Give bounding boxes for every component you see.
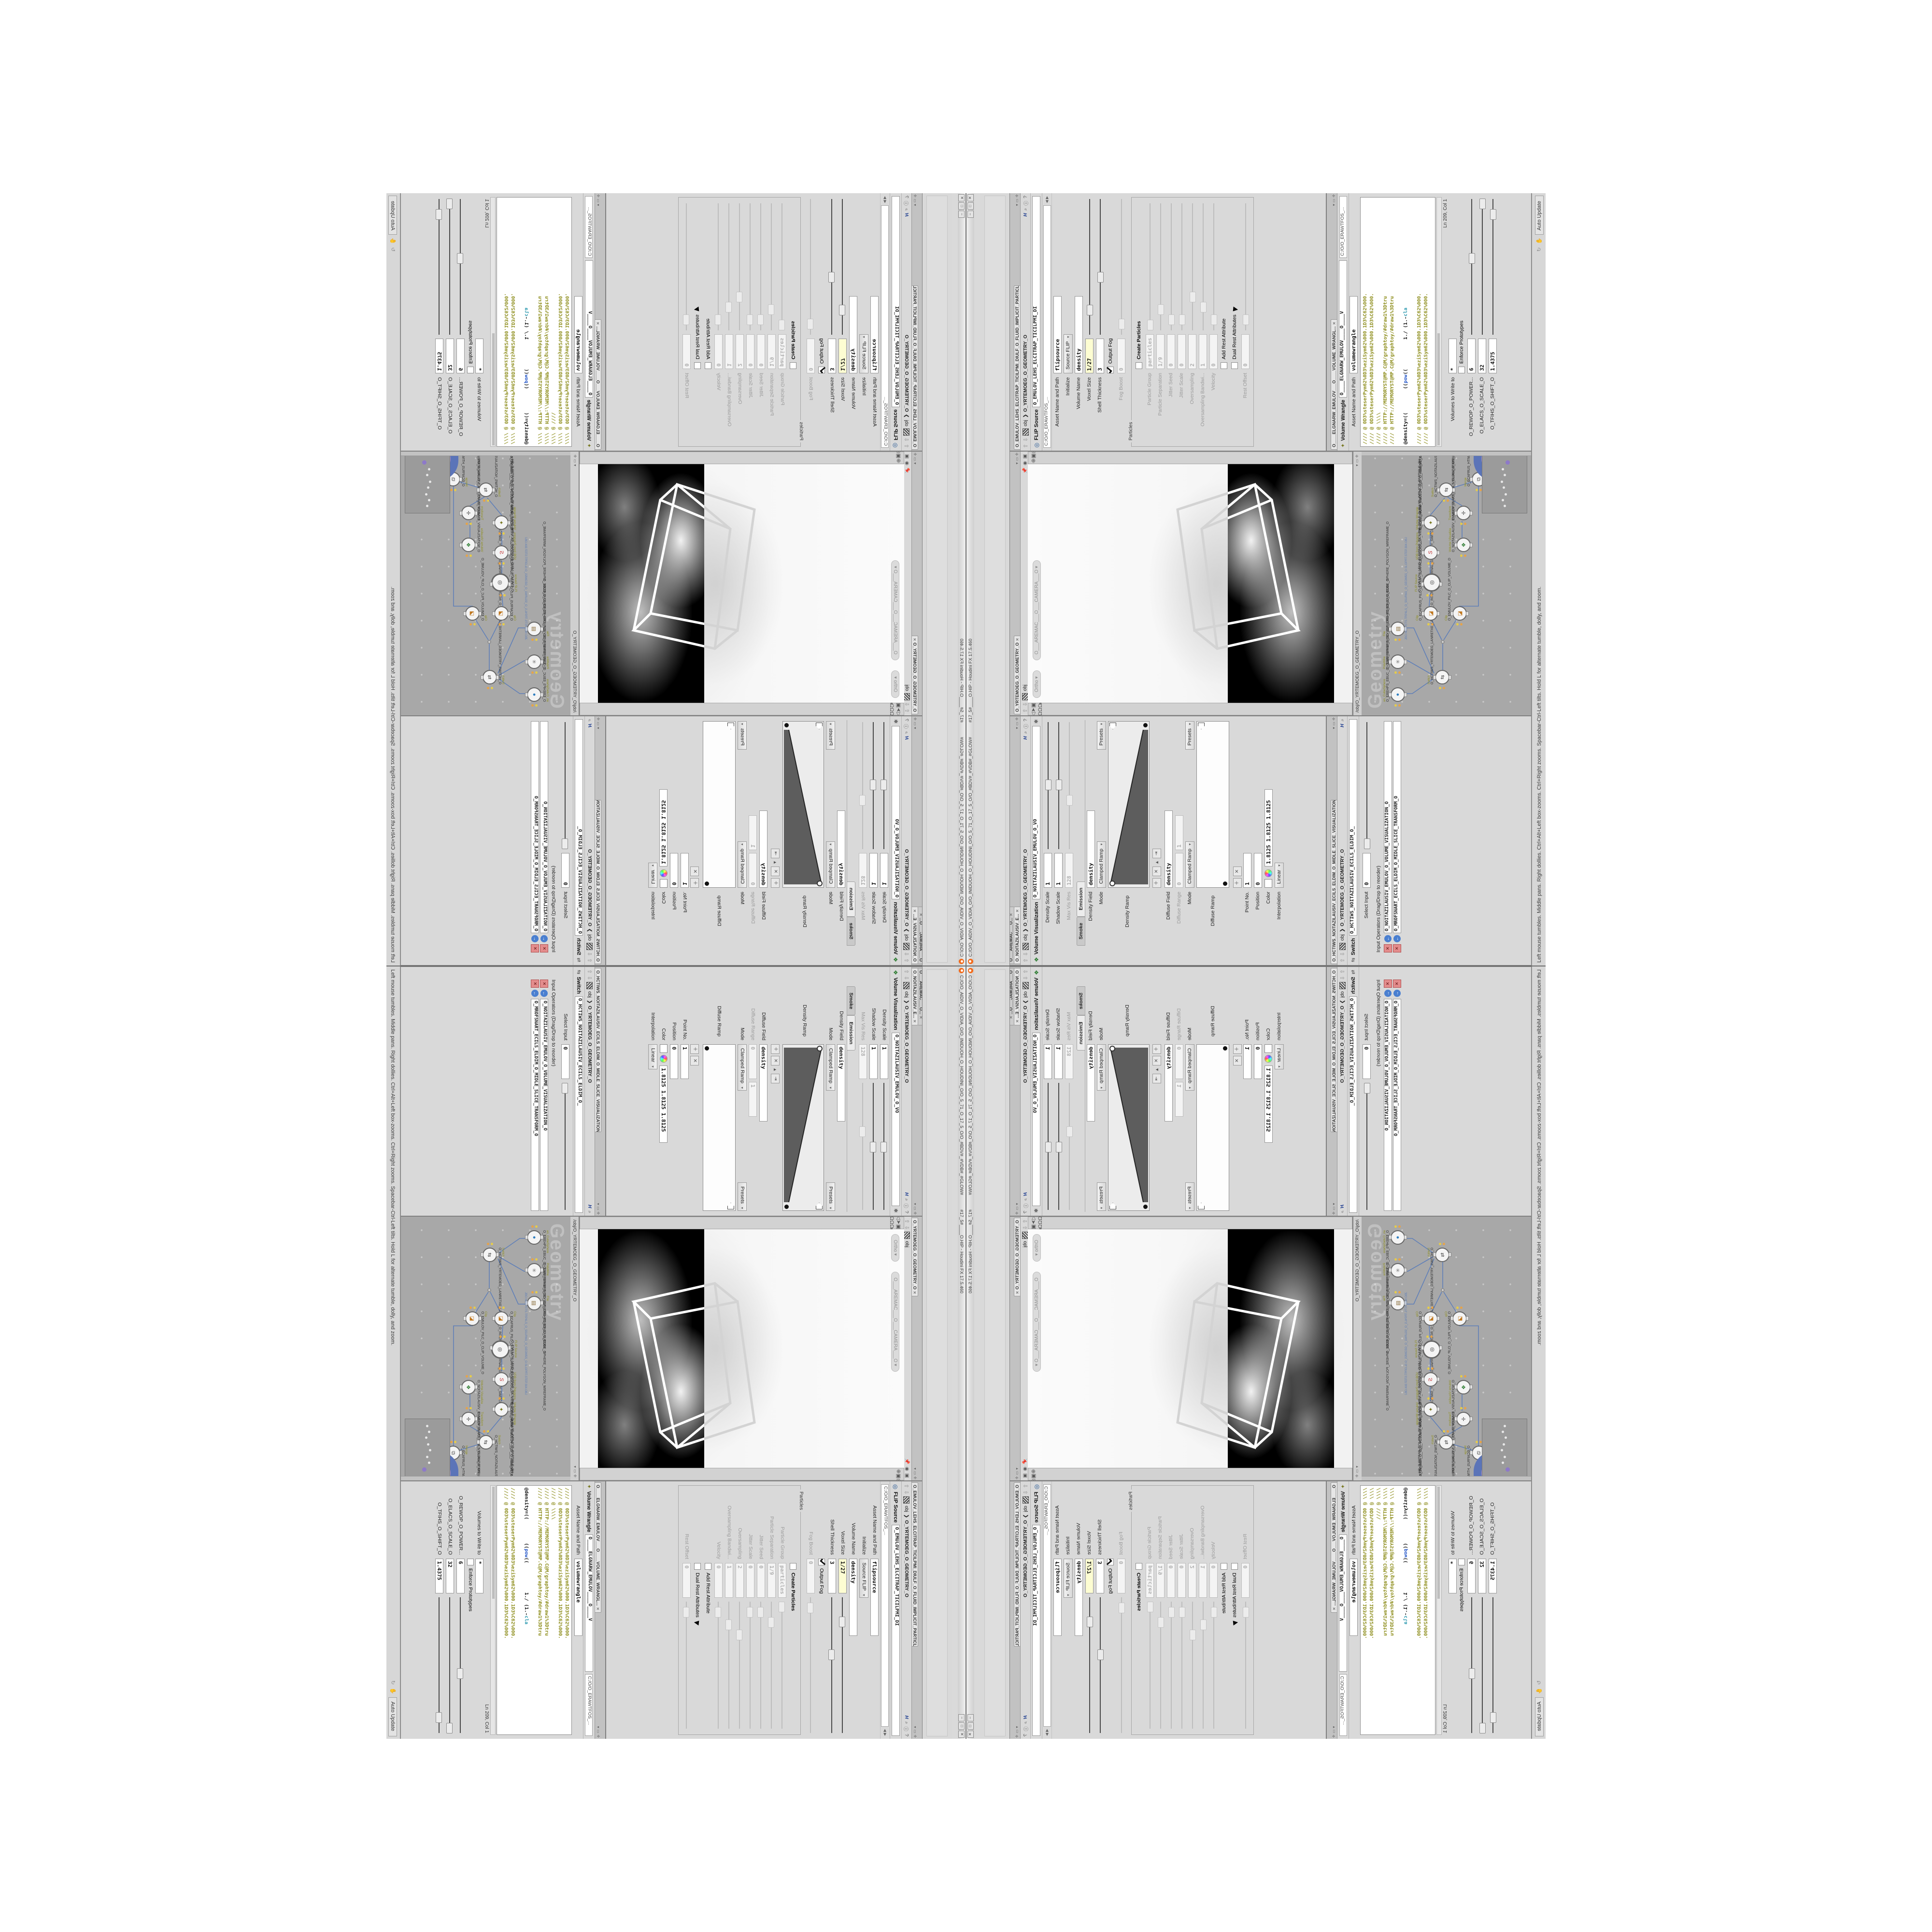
node-flag-badge[interactable] xyxy=(1439,1243,1441,1245)
minimize-button[interactable]: – xyxy=(959,1714,965,1721)
breadcrumb-root[interactable]: obj xyxy=(905,684,910,691)
node-flag-badge[interactable] xyxy=(473,1307,476,1309)
network-node[interactable]: PolyWire O_ENARFERIW_NOGYLOP_EREHPS_EBUC… xyxy=(1391,1263,1405,1279)
presets-dropdown[interactable]: Presets xyxy=(1185,1182,1194,1211)
pane-tab[interactable]: O_EMULOV_LEHS_ELCITRAP_TICILPMI_DIULF_O_… xyxy=(912,1482,918,1647)
pane-tab[interactable]: O___AREMAC___O...✕ xyxy=(918,968,922,1025)
param-slider[interactable] xyxy=(1167,1602,1175,1730)
interpolation-dropdown[interactable]: Linear xyxy=(1275,1044,1284,1069)
param-field[interactable]: 2 xyxy=(1188,1563,1196,1598)
param-slider[interactable] xyxy=(1210,202,1217,330)
ramp-delete-button[interactable]: ✕ xyxy=(771,1056,780,1065)
gear-icon[interactable]: ✱ xyxy=(893,1208,899,1213)
snapshot-icon[interactable]: ▣ xyxy=(905,454,910,458)
mode-dropdown[interactable]: Clamped Ramp xyxy=(1097,841,1106,888)
network-node[interactable]: FLIP Source O_EMULOV_LEHS_ELCITRAP_TICIL… xyxy=(491,575,510,592)
reorder-icon[interactable]: ← xyxy=(1393,990,1401,997)
close-button[interactable]: ✕ xyxy=(959,194,965,201)
param-slider[interactable] xyxy=(747,202,754,330)
density-ramp[interactable] xyxy=(1108,721,1150,888)
shell-thickness-field[interactable]: 3 xyxy=(1096,339,1104,373)
update-mode-dropdown[interactable]: Auto Update xyxy=(1535,196,1544,235)
tool-icon[interactable]: ▣ xyxy=(895,1224,901,1229)
param-field[interactable]: 1/9 xyxy=(768,334,776,369)
voxel-size-field[interactable]: 1/27 xyxy=(839,339,847,373)
asset-name-field[interactable]: volumewrangle xyxy=(1350,296,1358,373)
tool-icon[interactable]: Ω xyxy=(889,1224,895,1228)
param-field[interactable]: 0 xyxy=(715,334,723,369)
network-path[interactable]: /obj/O_YRTEMOEG_O_GEOMETRY_O xyxy=(1355,1220,1360,1302)
display-option-icon[interactable]: ◎ xyxy=(1031,451,1037,454)
pane-controls[interactable]: ▾▭✛ xyxy=(595,194,600,206)
network-node[interactable]: FLIP Source O_EMULOV_LEHS_ELCITRAP_TICIL… xyxy=(491,1340,510,1357)
delete-input-button[interactable]: ✕ xyxy=(1393,980,1401,988)
pane-controls[interactable]: ▾▭✛ xyxy=(1332,1203,1337,1215)
param-slider[interactable] xyxy=(1044,1083,1051,1211)
breadcrumb-path[interactable]: O_YRTEMOEG_O_GEOMETRY_O xyxy=(587,849,593,926)
param-field[interactable]: 0 xyxy=(1254,853,1262,888)
search-icon[interactable]: ⌕ xyxy=(1023,731,1028,734)
param-slider[interactable] xyxy=(715,1602,723,1730)
ramp-add-button[interactable]: ＋ xyxy=(690,1044,699,1054)
network-node[interactable]: FLIP Source O_EMULOV_LEHS_ELCITRAP_TICIL… xyxy=(1422,1340,1441,1357)
param-slider[interactable] xyxy=(870,1083,878,1211)
pin-icon[interactable]: 📌 xyxy=(1023,468,1028,473)
color-wheel-icon[interactable] xyxy=(660,869,668,877)
network-canvas[interactable]: Geometry xyxy=(1362,452,1531,715)
node-flag-badge[interactable] xyxy=(1394,704,1397,707)
enforce-prototypes-checkbox[interactable] xyxy=(467,367,474,373)
color-wheel-icon[interactable] xyxy=(1264,1055,1272,1063)
tool-icon[interactable]: Ω xyxy=(889,1216,895,1220)
refresh-icon[interactable]: ↻ xyxy=(1536,1680,1542,1685)
diffuse-ramp[interactable] xyxy=(1196,1044,1229,1211)
network-canvas[interactable]: Geometry xyxy=(1362,1217,1531,1480)
node-name-field[interactable]: O_NOITAZILAUSIV_EMULOV_O_VO xyxy=(892,726,900,899)
nav-back-icon[interactable]: ⇧ xyxy=(587,958,593,963)
param-slider[interactable] xyxy=(1055,721,1062,849)
breadcrumb-path[interactable]: O_YRTEMOEG_O_GEOMETRY_O xyxy=(1023,335,1028,412)
node-flag-badge[interactable] xyxy=(535,1291,538,1293)
network-node[interactable]: Transform O_MROFSNART_ECILS_ELDIM_O_MIDL… xyxy=(1456,504,1471,520)
pane-tab[interactable]: O____ELGNARW_EMULOV___O____VOLUME_WRANGL… xyxy=(595,319,601,450)
network-node[interactable]: Transform O_MROFSNART_ECILS_ELDIM_O_MIDL… xyxy=(461,1412,476,1428)
ramp-point[interactable] xyxy=(1109,1046,1115,1051)
asset-name-field[interactable]: volumewrangle xyxy=(574,1559,582,1636)
param-field[interactable]: 1 xyxy=(881,1044,889,1079)
pane-tab[interactable]: O_NOITAZILAUSIV_E...✕ xyxy=(1014,907,1020,964)
input-operator-name[interactable]: O_NOITAZILAUSIV_EMULOV_O_VOLUME_VISUALIZ… xyxy=(540,999,548,1211)
maximize-button[interactable]: □ xyxy=(959,1722,965,1730)
code-hscrollbar[interactable] xyxy=(1436,1485,1442,1735)
houdini-help-icon[interactable]: H xyxy=(587,724,593,727)
node-flag-badge[interactable] xyxy=(1394,1291,1397,1293)
param-slider[interactable] xyxy=(1468,1597,1475,1734)
camera-icon[interactable]: ◉ xyxy=(1023,461,1028,465)
node-flag-badge[interactable] xyxy=(502,1307,505,1309)
close-icon[interactable]: ✕ xyxy=(913,909,917,912)
color-wheel-icon[interactable] xyxy=(660,1055,668,1063)
delete-input-button[interactable]: ✕ xyxy=(540,944,548,952)
asset-path-field[interactable]: C:/O/O_ERAWTFOS_... xyxy=(585,196,593,258)
param-field[interactable]: 2 xyxy=(1188,334,1196,369)
diffuse-field[interactable]: density xyxy=(760,1044,768,1122)
param-slider[interactable] xyxy=(1086,198,1093,335)
param-slider[interactable] xyxy=(1178,202,1185,330)
create-particles-checkbox[interactable] xyxy=(1136,362,1142,369)
nav-back-icon[interactable]: ⇧ xyxy=(904,709,910,713)
dual-rest-checkbox[interactable] xyxy=(1231,362,1238,369)
network-node[interactable]: Volume Wrangle O___ELGNARW_EMULOV___O___… xyxy=(494,1402,509,1419)
nav-back-icon[interactable]: ⇧ xyxy=(1022,1219,1028,1223)
node-flag-badge[interactable] xyxy=(1427,532,1430,535)
display-option-icon[interactable]: ⊕ xyxy=(1031,458,1037,463)
breadcrumb-root[interactable]: obj xyxy=(904,991,909,997)
node-flag-badge[interactable] xyxy=(1464,1407,1466,1409)
node-name-field[interactable]: O____ELGNARW_EMULOV____O____V xyxy=(585,1534,593,1672)
node-flag-badge[interactable] xyxy=(1476,489,1478,491)
param-slider[interactable] xyxy=(881,721,888,849)
node-flag-badge[interactable] xyxy=(469,623,472,625)
param-slider[interactable] xyxy=(447,198,454,335)
param-slider[interactable] xyxy=(1055,1083,1062,1211)
network-minimap[interactable] xyxy=(1482,1419,1527,1477)
snapshot-icon[interactable]: ▣ xyxy=(905,1474,910,1478)
breadcrumb-root[interactable]: obj xyxy=(1023,1241,1028,1247)
network-node[interactable]: Switch O_HCTIWS_YRTEMOEG_LANRETXE_LANRET… xyxy=(1435,1248,1449,1264)
shell-thickness-field[interactable]: 3 xyxy=(828,1559,837,1593)
pane-controls[interactable]: ▾▭✛ xyxy=(912,453,917,464)
output-fog-checkbox[interactable] xyxy=(1107,1559,1114,1565)
input-operator-name[interactable]: O_NOITAZILAUSIV_EMULOV_O_VOLUME_VISUALIZ… xyxy=(1384,999,1392,1211)
select-input-field[interactable]: 0 xyxy=(1363,853,1371,888)
network-node[interactable]: File O_BUSLDRB_EGBD_GANUBODL_O ▤ JBO.N03… xyxy=(527,1296,541,1312)
param-field[interactable]: 0 xyxy=(1167,334,1175,369)
input-operator-name[interactable]: O_NOITAZILAUSIV_EMULOV_O_VOLUME_VISUALIZ… xyxy=(540,721,548,933)
display-option-icon[interactable]: ▣ xyxy=(1031,454,1037,458)
color-swatch[interactable] xyxy=(1264,879,1272,888)
pane-controls[interactable]: ▾▭✛ xyxy=(572,455,577,466)
asset-name-field[interactable]: flipsource xyxy=(1053,296,1062,373)
pin-icon[interactable]: 📌 xyxy=(1023,1458,1028,1464)
param-field[interactable]: 0 xyxy=(1209,334,1218,369)
close-button[interactable]: ✕ xyxy=(959,1731,965,1738)
nav-back-icon[interactable]: ⇧ xyxy=(1339,969,1346,974)
ramp-delete-button[interactable]: ✕ xyxy=(690,867,699,876)
density-ramp[interactable] xyxy=(782,721,824,888)
search-icon[interactable]: ⌕ xyxy=(904,731,909,734)
folder-tab[interactable]: Smoke xyxy=(847,986,855,1015)
select-input-field[interactable]: 0 xyxy=(1363,1044,1371,1079)
breadcrumb-root[interactable]: obj xyxy=(1023,684,1028,691)
update-mode-dropdown[interactable]: Auto Update xyxy=(1535,1697,1544,1736)
presets-dropdown[interactable]: Presets xyxy=(738,721,747,750)
node-name-field[interactable]: O_HCTIWS_NOITAZILAUSIV_ECILS_ELDIM_O_ xyxy=(575,719,583,936)
asset-path-field[interactable]: C:/O/O_ERAWTFOS_... xyxy=(1043,205,1051,448)
network-node[interactable]: Switch O_HCTIWS_NOITAZILAUSIV_ECILS_ELDI… xyxy=(1439,481,1453,497)
volumes-field[interactable]: * xyxy=(1449,339,1457,373)
param-field[interactable]: 6 xyxy=(1467,339,1476,373)
node-name-field[interactable]: O_NOITAZILAUSIV_EMULOV_O_VO xyxy=(892,1033,900,1206)
network-node[interactable]: Clip O_ECAFRUS_PILC_O_CLIP_SURFACE_O ◪ xyxy=(1423,604,1438,621)
node-flag-badge[interactable] xyxy=(535,704,538,707)
param-field[interactable]: 0 xyxy=(715,1563,723,1598)
param-slider[interactable] xyxy=(447,1597,454,1734)
mode-dropdown[interactable]: Clamped Ramp xyxy=(1185,841,1194,888)
asset-path-field[interactable]: C:/O/O_ERAWTFOS_... xyxy=(881,205,889,448)
network-node[interactable]: Clip O_ECAFRUS_PILC_O_CLIP_SURFACE_O ◪ xyxy=(494,604,509,621)
pane-controls[interactable]: ▾▭✛ xyxy=(912,1203,917,1215)
color-values[interactable]: 1.8125 1.8125 1.8125 xyxy=(1264,789,1273,867)
delete-input-button[interactable]: ✕ xyxy=(540,980,548,988)
pane-tab[interactable]: O_NOITAZILAUSIV_E...✕ xyxy=(912,968,918,1025)
param-slider[interactable] xyxy=(1096,198,1104,335)
network-path[interactable]: /obj/O_YRTEMOEG_O_GEOMETRY_O xyxy=(1355,630,1360,712)
node-flag-badge[interactable] xyxy=(1476,1441,1478,1443)
update-mode-dropdown[interactable]: Auto Update xyxy=(389,1697,398,1736)
initialize-dropdown[interactable]: Source FLIP xyxy=(1064,1559,1073,1598)
nav-back-icon[interactable]: ⇧ xyxy=(904,1219,910,1223)
node-name-field[interactable]: O_NOITAZILAUSIV_EMULOV_O_VO xyxy=(1032,1033,1040,1206)
param-field[interactable]: 128 xyxy=(859,853,867,888)
param-field[interactable]: 1 xyxy=(725,1563,734,1598)
ramp-delete-button[interactable]: ✕ xyxy=(771,867,780,876)
ramp-add-button[interactable]: ＋ xyxy=(771,878,780,888)
close-icon[interactable]: ✕ xyxy=(1010,913,1013,916)
param-field[interactable]: 6 xyxy=(457,1559,465,1593)
node-name-field[interactable]: O_HCTIWS_NOITAZILAUSIV_ECILS_ELDIM_O_ xyxy=(575,996,583,1213)
param-field[interactable]: 1 xyxy=(870,853,878,888)
nav-forward-icon[interactable]: ⇩ xyxy=(904,1490,910,1494)
network-node[interactable]: an_CubeSphere O_EREHPS_EBUC_O_CUBE_SPHER… xyxy=(1391,685,1405,702)
camera-pill[interactable]: O___AREMAC___O___CAMERA___O ▾ xyxy=(891,560,899,660)
node-flag-badge[interactable] xyxy=(491,1243,493,1245)
param-field[interactable]: 1/9 xyxy=(768,1563,776,1598)
pane-tab[interactable]: O_HCTIWS_NOITAZILAUSIV_ECILS_ELDIM_O_MID… xyxy=(595,968,601,1132)
node-flag-badge[interactable] xyxy=(450,489,453,491)
houdini-help-icon[interactable]: H xyxy=(904,213,909,216)
pane-controls[interactable]: ▾▭✛ xyxy=(572,1466,577,1477)
network-canvas[interactable]: Geometry xyxy=(401,1217,570,1480)
node-flag-badge[interactable] xyxy=(1398,639,1401,641)
nav-back-icon[interactable]: ⇧ xyxy=(904,969,910,974)
vex-code-editor[interactable]: //// @ 0D3%steserPym62%0D3%eziSym62%000.… xyxy=(1360,197,1435,447)
node-flag-badge[interactable] xyxy=(466,523,468,525)
param-slider[interactable] xyxy=(1146,202,1153,330)
reorder-icon[interactable]: ← xyxy=(531,990,539,997)
asset-name-field[interactable]: flipsource xyxy=(871,296,879,373)
node-flag-badge[interactable] xyxy=(1443,1243,1445,1245)
search-icon[interactable]: ⌕ xyxy=(904,1721,909,1724)
param-field[interactable]: 1 xyxy=(870,1044,878,1079)
param-field[interactable]: 128 xyxy=(1065,1044,1073,1079)
network-node[interactable]: PolyWire O_ENARFERIW_NOGYLOP_EREHPS_EBUC… xyxy=(1391,653,1405,669)
nav-forward-icon[interactable]: ⇩ xyxy=(1022,1225,1028,1230)
nav-forward-icon[interactable]: ⇩ xyxy=(1022,702,1028,707)
ramp-io-button[interactable]: ⇥ xyxy=(1152,1074,1161,1083)
code-hscrollbar[interactable] xyxy=(1436,197,1442,447)
network-node[interactable]: Transform O_MROFSNART_ECILS_ELDIM_O_MIDL… xyxy=(1456,1412,1471,1428)
node-flag-badge[interactable] xyxy=(491,687,493,689)
mode-dropdown[interactable]: Clamped Ramp xyxy=(738,841,747,888)
tool-icon[interactable]: ◁ xyxy=(895,712,901,716)
close-icon[interactable]: ✕ xyxy=(919,913,923,916)
minimize-button[interactable]: – xyxy=(959,211,965,218)
network-node[interactable]: Clip O_EMULOV_PILC_O_CLIP_VOLUME_O ◪ xyxy=(1452,1311,1467,1328)
param-slider[interactable] xyxy=(1157,1602,1164,1730)
param-slider[interactable] xyxy=(562,721,569,849)
param-slider[interactable] xyxy=(1044,721,1051,849)
node-name-field[interactable]: O____ELGNARW_EMULOV____O____V xyxy=(1339,260,1347,398)
mode-dropdown[interactable]: Clamped Ramp xyxy=(1097,1044,1106,1091)
color-swatch[interactable] xyxy=(660,879,668,888)
ramp-interp-icon[interactable]: ▲ xyxy=(1154,860,1159,865)
pane-tab[interactable]: O_NOITAZILAUSIV_E...✕ xyxy=(912,907,918,964)
node-name-field[interactable]: O____ELGNARW_EMULOV____O____V xyxy=(585,260,593,398)
node-flag-badge[interactable] xyxy=(1398,1225,1401,1228)
volume-name-field[interactable]: density xyxy=(850,296,858,373)
asset-name-field[interactable]: volumewrangle xyxy=(574,296,582,373)
pane-tab[interactable]: O_YRTEMOEG_O_GEOMETRY_O✕ xyxy=(1014,636,1020,714)
breadcrumb-root[interactable]: obj xyxy=(587,934,593,940)
network-node[interactable]: VDB from Polygons O_SNOGILOP_YRTEMOEG_MO… xyxy=(1423,1372,1438,1389)
tool-icon[interactable]: ➤ xyxy=(1031,708,1037,712)
node-flag-badge[interactable] xyxy=(469,1407,472,1409)
tool-icon[interactable]: Ω xyxy=(889,708,895,711)
param-slider[interactable] xyxy=(1199,202,1207,330)
node-flag-badge[interactable] xyxy=(535,1225,538,1228)
tool-icon[interactable]: Ω xyxy=(1037,1216,1043,1220)
node-flag-badge[interactable] xyxy=(1427,562,1430,565)
network-node[interactable]: Switch O_HCTIWS_NOITAZILAUSIV_ECILS_ELDI… xyxy=(479,1435,493,1451)
viewport-canvas[interactable]: Ortho ▾ O___AREMAC___O___CAMERA___O ▾ xyxy=(1028,1229,1352,1468)
maximize-button[interactable]: □ xyxy=(967,202,974,210)
node-flag-badge[interactable] xyxy=(1460,1307,1463,1309)
folder-tab[interactable]: Smoke xyxy=(1077,986,1085,1015)
node-flag-badge[interactable] xyxy=(1398,1291,1401,1293)
network-scrollbar[interactable] xyxy=(401,452,570,456)
color-values[interactable]: 1.8125 1.8125 1.8125 xyxy=(660,1065,668,1143)
node-name-field[interactable]: O____ELGNARW_EMULOV____O____V xyxy=(1339,1534,1347,1672)
param-field[interactable]: 1 xyxy=(1243,853,1251,888)
close-button[interactable]: ✕ xyxy=(967,1731,974,1738)
info-icon[interactable]: ⓘ xyxy=(903,201,910,206)
breadcrumb-path[interactable]: O_YRTEMOEG_O_GEOMETRY_O xyxy=(1023,1520,1028,1597)
tool-icon[interactable]: ◁ xyxy=(1031,1216,1037,1220)
input-operator-name[interactable]: O_MROFSNART_ECILS_ELDIM_O_MIDLE_SLICE_TR… xyxy=(1393,721,1401,933)
node-flag-badge[interactable] xyxy=(1427,1367,1430,1370)
maximize-button[interactable]: □ xyxy=(967,1722,974,1730)
network-path[interactable]: /obj/O_YRTEMOEG_O_GEOMETRY_O xyxy=(572,1220,577,1302)
param-slider[interactable] xyxy=(1478,198,1486,335)
pane-controls[interactable]: ▾▭✛ xyxy=(1332,717,1337,729)
param-field[interactable]: 1 xyxy=(681,1044,689,1079)
network-scrollbar[interactable] xyxy=(1362,452,1531,456)
node-flag-badge[interactable] xyxy=(466,1375,468,1378)
node-flag-badge[interactable] xyxy=(1464,523,1466,525)
param-field[interactable]: 1 xyxy=(1243,1044,1251,1079)
param-slider[interactable] xyxy=(1086,1597,1093,1734)
ramp-add-button[interactable]: ＋ xyxy=(771,1044,780,1054)
network-node[interactable]: an_CubeSphere O_EREHPS_EBUC_O_CUBE_SPHER… xyxy=(527,1230,541,1247)
node-flag-badge[interactable] xyxy=(1447,499,1449,502)
ramp-delete-button[interactable]: ✕ xyxy=(690,1056,699,1065)
nav-forward-icon[interactable]: ⇩ xyxy=(1023,952,1029,956)
param-field[interactable]: 0 xyxy=(757,334,766,369)
ramp-delete-button[interactable]: ✕ xyxy=(1233,1056,1242,1065)
info-icon[interactable]: ⓘ xyxy=(903,1203,910,1208)
mode-dropdown[interactable]: Clamped Ramp xyxy=(826,1044,836,1091)
ramp-point[interactable] xyxy=(817,1046,823,1051)
param-field[interactable]: 6 xyxy=(457,339,465,373)
param-field[interactable]: 0 xyxy=(747,334,755,369)
pane-controls[interactable]: ▾▭✛ xyxy=(1332,194,1337,206)
nav-back-icon[interactable]: ⇧ xyxy=(587,969,593,974)
close-icon[interactable]: ✕ xyxy=(1010,1016,1013,1019)
param-field[interactable]: 1 xyxy=(681,853,689,888)
pane-tab[interactable]: O_YRTEMOEG_O_GEOMETRY_O✕ xyxy=(1014,1218,1020,1296)
delete-input-button[interactable]: ✕ xyxy=(1393,944,1401,952)
node-flag-badge[interactable] xyxy=(454,489,456,491)
param-slider[interactable] xyxy=(758,202,765,330)
tool-icon[interactable]: ➤ xyxy=(1031,1220,1037,1224)
nav-forward-icon[interactable]: ⇩ xyxy=(904,702,910,707)
node-flag-badge[interactable] xyxy=(469,1307,472,1309)
shell-thickness-field[interactable]: 3 xyxy=(828,339,837,373)
param-field[interactable]: 1.4375 xyxy=(1489,339,1497,373)
volumes-field[interactable]: * xyxy=(1449,1559,1457,1593)
network-node[interactable]: File O_BUSLDRB_EGBD_GANUBODL_O ▤ JBO.N03… xyxy=(1391,620,1405,636)
breadcrumb-root[interactable]: obj xyxy=(1023,1506,1028,1512)
node-flag-badge[interactable] xyxy=(1464,1375,1466,1378)
ramp-point[interactable] xyxy=(705,1046,709,1051)
tool-icon[interactable]: ▣ xyxy=(1031,1224,1037,1229)
breadcrumb-path[interactable]: O_YRTEMOEG_O_GEOMETRY_O xyxy=(904,849,909,926)
pane-controls[interactable]: ▾▭✛ xyxy=(912,1468,917,1479)
reorder-icon[interactable]: ← xyxy=(540,935,548,942)
pane-controls[interactable]: ▾▭✛ xyxy=(1015,1203,1020,1215)
param-field[interactable]: 1 xyxy=(1199,334,1207,369)
node-flag-badge[interactable] xyxy=(498,623,501,625)
close-icon[interactable]: ✕ xyxy=(596,1607,600,1610)
delete-input-button[interactable]: ✕ xyxy=(531,944,539,952)
houdini-help-icon[interactable]: H xyxy=(1023,736,1028,739)
asset-path-field[interactable]: C:/O/O_ERAWTFOS_... xyxy=(585,1674,593,1736)
memory-icon[interactable]: ✋ xyxy=(390,238,396,244)
pane-controls[interactable]: ▾▭✛ xyxy=(595,1203,600,1215)
tool-icon[interactable]: ◁ xyxy=(1031,712,1037,716)
pane-tab[interactable]: O___AREMAC___O...✕ xyxy=(1010,907,1014,964)
network-node[interactable]: Clip O_ECAFRUS_PILC_O_CLIP_SURFACE_O ◪ xyxy=(1423,1311,1438,1328)
node-flag-badge[interactable] xyxy=(1431,1397,1434,1400)
select-input-field[interactable]: 0 xyxy=(562,1044,570,1079)
node-flag-badge[interactable] xyxy=(499,594,502,597)
presets-dropdown[interactable]: Presets xyxy=(826,721,836,750)
network-canvas[interactable]: Geometry xyxy=(401,452,570,715)
mode-dropdown[interactable]: Clamped Ramp xyxy=(826,841,836,888)
folder-tab[interactable]: Smoke xyxy=(847,917,855,946)
dual-rest-checkbox[interactable] xyxy=(694,1563,701,1570)
node-flag-badge[interactable] xyxy=(535,671,538,674)
memory-icon[interactable]: ✋ xyxy=(1536,238,1542,244)
input-operator-name[interactable]: O_NOITAZILAUSIV_EMULOV_O_VOLUME_VISUALIZ… xyxy=(1384,721,1392,933)
network-node[interactable]: Volume Wrangle O___ELGNARW_EMULOV___O___… xyxy=(494,513,509,530)
network-node[interactable]: Volume Wrangle O___ELGNARW_EMULOV___O___… xyxy=(1423,1402,1438,1419)
reorder-icon[interactable]: ← xyxy=(1384,935,1392,942)
ramp-delete-button[interactable]: ✕ xyxy=(1152,867,1161,876)
param-slider[interactable] xyxy=(839,198,847,335)
nav-back-icon[interactable]: ⇧ xyxy=(1023,969,1029,974)
